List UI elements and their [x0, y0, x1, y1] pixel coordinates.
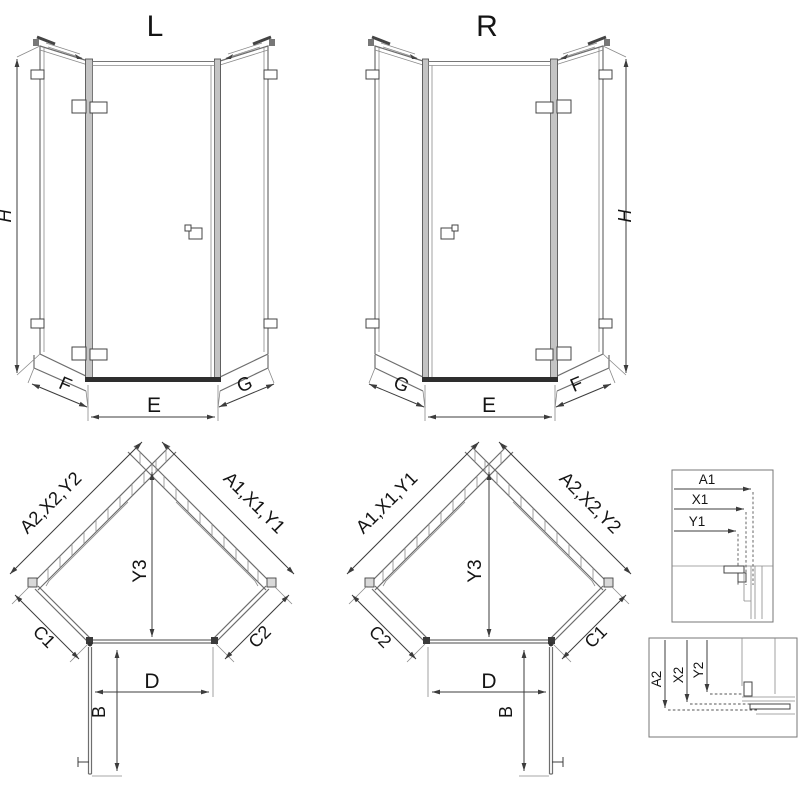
plan-left-d-label: D: [144, 670, 159, 693]
drawing-canvas: L H F E G R H G E F A2,X2,Y2 A1,X1,Y1 Y3…: [0, 0, 800, 800]
plan-left-c1-label: C1: [29, 622, 59, 652]
plan-left-wall-label-upper-right: A1,X1,Y1: [220, 467, 290, 537]
detail-y2-label: Y2: [691, 662, 706, 679]
elevation-right-view: [366, 37, 626, 421]
plan-right-c2-label: C2: [365, 622, 395, 652]
dim-label-E-left: E: [147, 394, 161, 417]
dim-label-G-left: G: [234, 372, 256, 397]
plan-right-b-label: B: [496, 706, 516, 718]
plan-left-c2-label: C2: [245, 622, 275, 652]
plan-left-y3-label: Y3: [130, 559, 151, 582]
detail-view-bottom: [649, 638, 797, 737]
view-title-left: L: [147, 10, 164, 43]
dim-label-H-left: H: [0, 209, 15, 223]
plan-right-wall-label-upper-right: A2,X2,Y2: [556, 467, 626, 537]
dim-label-H-right: H: [615, 209, 635, 223]
plan-right-wall-label-upper-left: A1,X1,Y1: [351, 467, 421, 537]
detail-x1-label: X1: [692, 492, 709, 507]
detail-top-frame: [672, 470, 773, 622]
plan-left-wall-label-upper-left: A2,X2,Y2: [15, 467, 85, 537]
dim-label-E-right: E: [482, 394, 496, 417]
plan-right-d-label: D: [481, 670, 496, 693]
plan-left-b-label: B: [89, 706, 109, 718]
elevation-left-view: [17, 37, 277, 421]
shower-enclosure-technical-drawing: L H F E G R H G E F A2,X2,Y2 A1,X1,Y1 Y3…: [0, 0, 800, 800]
detail-y1-label: Y1: [689, 514, 706, 529]
plan-right-y3-label: Y3: [465, 559, 486, 582]
plan-right-c1-label: C1: [581, 622, 611, 652]
detail-view-top: [672, 470, 773, 622]
dim-label-F-right: F: [567, 373, 586, 397]
detail-x2-label: X2: [671, 667, 686, 684]
detail-a1-label: A1: [699, 472, 716, 487]
detail-a2-label: A2: [649, 671, 664, 688]
view-title-right: R: [476, 10, 498, 43]
